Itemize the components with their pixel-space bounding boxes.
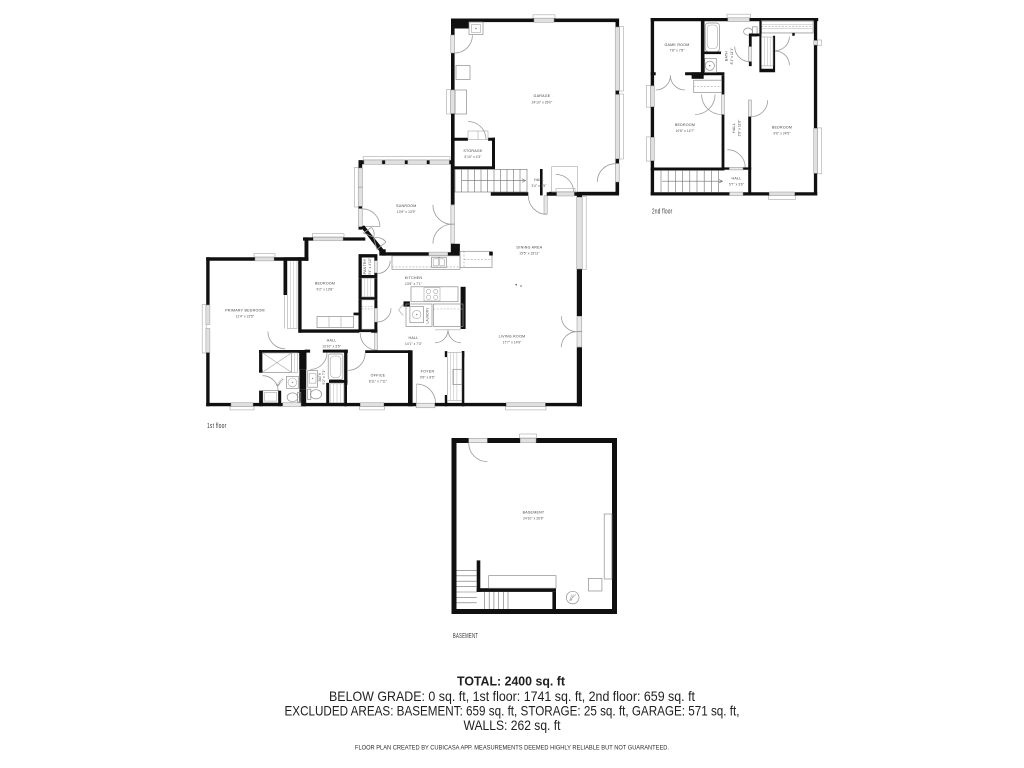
svg-text:2'8" x 11'6": 2'8" x 11'6" (738, 120, 742, 137)
svg-text:11'4" x 22'5": 11'4" x 22'5" (236, 315, 255, 319)
svg-text:BEDROOM: BEDROOM (315, 282, 335, 286)
svg-text:2nd floor: 2nd floor (652, 209, 673, 216)
svg-text:10'8" x 14'7": 10'8" x 14'7" (676, 129, 695, 133)
svg-text:7'8" x 7'8": 7'8" x 7'8" (669, 49, 684, 53)
svg-text:FLOOR PLAN CREATED BY CUBICASA: FLOOR PLAN CREATED BY CUBICASA APP. MEAS… (355, 744, 669, 751)
svg-text:13'9" x 13'9": 13'9" x 13'9" (397, 210, 416, 214)
svg-text:HALL: HALL (534, 178, 544, 182)
svg-text:17'7" x 14'9": 17'7" x 14'9" (503, 341, 522, 345)
svg-text:KITCHEN: KITCHEN (405, 276, 423, 280)
svg-text:HALL: HALL (732, 177, 742, 181)
svg-text:GARAGE: GARAGE (534, 94, 551, 98)
svg-text:LIVING ROOM: LIVING ROOM (499, 335, 526, 339)
svg-text:5'7" x 3'6": 5'7" x 3'6" (729, 183, 744, 187)
svg-text:5'2" x 7'1": 5'2" x 7'1" (322, 369, 326, 384)
svg-text:DINING AREA: DINING AREA (517, 246, 543, 250)
svg-text:HALL: HALL (409, 336, 419, 340)
svg-text:8'11" x 7'11": 8'11" x 7'11" (369, 380, 387, 384)
svg-text:3'4" x 3'5": 3'4" x 3'5" (531, 184, 546, 188)
svg-text:BEDROOM: BEDROOM (772, 126, 792, 130)
svg-text:BASEMENT: BASEMENT (453, 633, 478, 640)
svg-text:WALLS: 262 sq. ft: WALLS: 262 sq. ft (464, 717, 561, 733)
svg-text:5'10" x 4'3": 5'10" x 4'3" (465, 155, 482, 159)
svg-text:PANTRY: PANTRY (363, 258, 367, 274)
svg-text:15'5" x 15'11": 15'5" x 15'11" (519, 252, 539, 256)
svg-text:GAME ROOM: GAME ROOM (664, 43, 689, 47)
svg-text:PRIMARY BEDROOM: PRIMARY BEDROOM (225, 309, 265, 313)
svg-text:TOTAL: 2400 sq. ft: TOTAL: 2400 sq. ft (457, 673, 566, 688)
svg-text:HALL: HALL (732, 123, 736, 133)
svg-text:8'1" x 11'1": 8'1" x 11'1" (730, 48, 734, 65)
svg-text:9'6" x 24'5": 9'6" x 24'5" (774, 132, 791, 136)
svg-text:24'10" x 26'0": 24'10" x 26'0" (532, 101, 553, 105)
svg-text:BATH: BATH (725, 51, 729, 61)
svg-text:14'1" x 7'3": 14'1" x 7'3" (405, 342, 422, 346)
svg-text:13'10" x 3'5": 13'10" x 3'5" (322, 345, 341, 349)
svg-text:STORAGE: STORAGE (463, 149, 483, 153)
svg-text:1st floor: 1st floor (207, 423, 227, 430)
svg-text:3'4" x 4'10": 3'4" x 4'10" (368, 258, 372, 275)
svg-text:24'10" x 26'6": 24'10" x 26'6" (523, 517, 544, 521)
svg-text:FOYER: FOYER (421, 370, 435, 374)
svg-text:LAUNDRY: LAUNDRY (426, 307, 430, 324)
svg-text:13'6" x 7'1": 13'6" x 7'1" (405, 282, 422, 286)
svg-text:9'2" x 13'8": 9'2" x 13'8" (317, 288, 334, 292)
svg-text:BASEMENT: BASEMENT (523, 511, 545, 515)
svg-text:OFFICE: OFFICE (371, 374, 386, 378)
svg-text:BEDROOM: BEDROOM (675, 123, 695, 127)
svg-text:SUNROOM: SUNROOM (396, 204, 417, 208)
svg-text:9'9" x 8'5": 9'9" x 8'5" (420, 376, 435, 380)
svg-text:HALL: HALL (327, 339, 337, 343)
